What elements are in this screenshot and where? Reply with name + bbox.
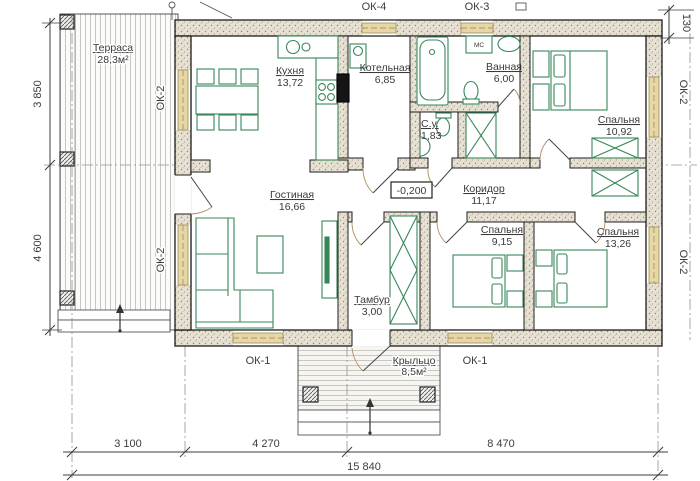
- elevation-mark: -0,200: [391, 182, 432, 198]
- room-label-tambour: Тамбур: [354, 294, 390, 306]
- dim-top-right-value: 130: [680, 14, 692, 32]
- bathtub: [417, 37, 448, 105]
- room-label-bedroom3: Спальня: [597, 226, 639, 238]
- dim-bottom-3: 8 470: [487, 438, 515, 450]
- floor-plan-drawing: МС -0,200 Терраса 28,3м² Кухня 13,72 Кот…: [0, 0, 700, 481]
- room-area-boiler: 6,85: [375, 74, 396, 86]
- wall-north: [175, 20, 662, 36]
- window-tag-ok2-east1: ОК-2: [677, 80, 689, 105]
- room-area-corridor: 11,17: [471, 195, 497, 207]
- room-area-living: 16,66: [279, 201, 305, 213]
- washing-machine-label: МС: [474, 42, 484, 49]
- window-tag-ok2-east2: ОК-2: [677, 250, 689, 275]
- window-tag-ok1-b: ОК-1: [463, 355, 488, 367]
- dim-bottom: 3 100 4 270 8 470 15 840: [63, 438, 668, 480]
- window-tag-ok2-west1: ОК-2: [155, 86, 167, 111]
- tv: [325, 237, 329, 283]
- terrace-step: [58, 310, 170, 320]
- dim-bottom-2: 4 270: [252, 438, 280, 450]
- shaft: [466, 113, 496, 158]
- fridge: [337, 74, 349, 102]
- window-tag-ok1-a: ОК-1: [246, 355, 271, 367]
- window-west-1: [174, 70, 192, 130]
- room-area-terrace: 28,3м²: [97, 54, 129, 66]
- dim-bottom-1: 3 100: [114, 438, 142, 450]
- room-label-wc: С.у.: [421, 118, 439, 130]
- dim-top-right: 130: [658, 5, 694, 44]
- window-ok1-a: [233, 329, 283, 347]
- room-label-bedroom2: Спальня: [481, 224, 523, 236]
- window-ok3: [461, 19, 493, 37]
- room-area-bedroom1: 10,92: [606, 126, 632, 138]
- window-tag-ok2-west2: ОК-2: [155, 248, 167, 273]
- wardrobe-tambour: [390, 216, 417, 324]
- wall-stub: [310, 160, 348, 172]
- room-area-tambour: 3,00: [362, 306, 383, 318]
- room-area-bedroom3: 13,26: [605, 238, 631, 250]
- room-label-terrace: Терраса: [93, 42, 133, 54]
- window-east-1: [645, 77, 663, 137]
- tv-stand: [322, 221, 337, 298]
- stove: [316, 80, 337, 104]
- room-label-kitchen: Кухня: [276, 65, 304, 77]
- window-ok1-b: [448, 329, 492, 347]
- room-area-porch: 8,5м²: [401, 366, 427, 378]
- dim-bottom-total: 15 840: [347, 461, 381, 473]
- elevation-value: -0,200: [397, 185, 427, 197]
- window-ok4: [362, 19, 396, 37]
- room-area-bathroom: 6,00: [494, 73, 515, 85]
- dim-left-top: 3 850: [32, 80, 44, 108]
- room-area-bedroom2: 9,15: [492, 236, 513, 248]
- wall-stub: [191, 160, 210, 172]
- room-label-bedroom1: Спальня: [598, 114, 640, 126]
- room-area-kitchen: 13,72: [277, 77, 303, 89]
- window-tag-ok4: ОК-4: [362, 1, 387, 13]
- room-label-living: Гостиная: [270, 189, 314, 201]
- room-label-bathroom: Ванная: [486, 61, 522, 73]
- porch-step: [298, 410, 440, 422]
- dim-left-bottom: 4 600: [32, 234, 44, 262]
- room-label-corridor: Коридор: [463, 183, 505, 195]
- wardrobe-corridor: [592, 170, 638, 196]
- dining-table: [196, 69, 258, 130]
- bathroom-toilet: [463, 82, 479, 105]
- dim-left: 3 850 4 600: [32, 18, 62, 336]
- window-west-2: [174, 225, 192, 285]
- bathroom-sink: [498, 37, 520, 52]
- wardrobe-bedroom1: [592, 138, 638, 158]
- floor-plan-sheet: МС -0,200 Терраса 28,3м² Кухня 13,72 Кот…: [0, 0, 700, 481]
- window-tag-ok3: ОК-3: [465, 1, 490, 13]
- porch-post: [420, 387, 435, 402]
- porch-post: [303, 387, 318, 402]
- coffee-table: [257, 236, 283, 273]
- room-area-wc: 1,83: [421, 130, 442, 142]
- room-label-boiler: Котельная: [360, 62, 411, 74]
- terrace-step: [58, 320, 170, 332]
- window-east-2: [645, 227, 663, 283]
